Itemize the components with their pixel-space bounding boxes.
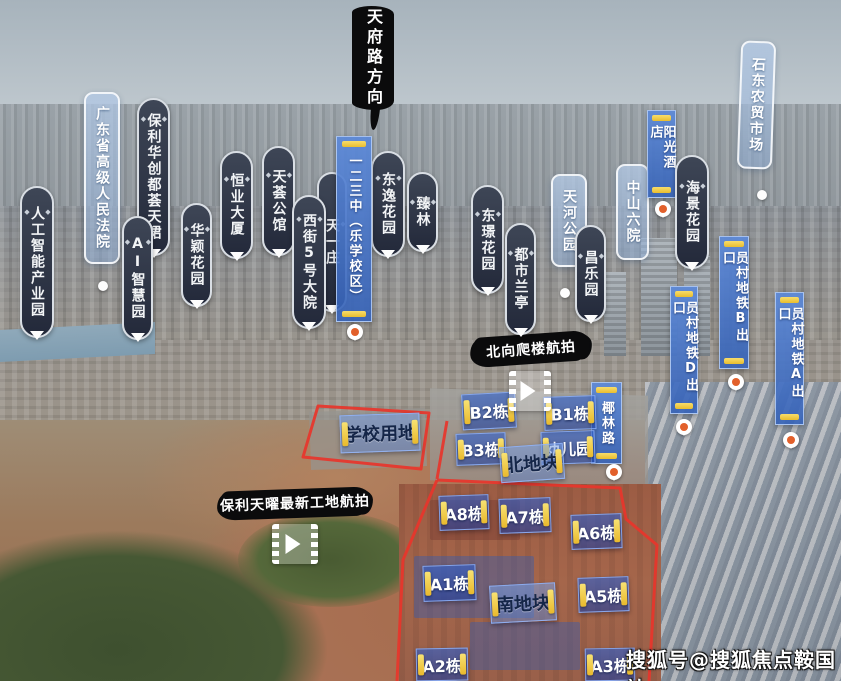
label-text: AI智慧园 bbox=[124, 236, 152, 320]
label-text: 广东省高级人民法院 bbox=[95, 106, 109, 250]
map-pin-icon bbox=[606, 464, 622, 480]
landmark-banner: 恒业大厦 bbox=[220, 151, 253, 259]
pointer-arrow-icon bbox=[131, 333, 145, 349]
label-text: 都市兰亭 bbox=[507, 247, 535, 311]
video-title-banner: 北向爬楼航拍 bbox=[471, 330, 591, 367]
video-title-banner: 保利天曜最新工地航拍 bbox=[219, 486, 372, 519]
building-label: A8栋 bbox=[438, 494, 489, 531]
landmark-banner: 海景花园 bbox=[675, 155, 709, 269]
label-text: 阳光酒店 bbox=[649, 111, 675, 197]
location-dot-icon bbox=[560, 288, 570, 298]
play-triangle-icon bbox=[521, 381, 546, 401]
pointer-arrow-icon bbox=[416, 245, 430, 261]
label-text: A6栋 bbox=[576, 519, 616, 544]
landmark-banner: 一二三中（乐学校区） bbox=[336, 136, 372, 322]
pointer-arrow-icon bbox=[30, 331, 44, 347]
label-text: 椰林路 bbox=[600, 387, 613, 460]
label-text: 海景花园 bbox=[678, 180, 706, 244]
label-text: 北地块 bbox=[504, 448, 560, 478]
label-text: 中山六院 bbox=[626, 180, 640, 244]
label-text: B3栋 bbox=[461, 436, 501, 461]
label-text: 员村地铁B出口 bbox=[721, 237, 747, 368]
label-text: 石东农贸市场 bbox=[748, 57, 765, 153]
map-pin-icon bbox=[655, 201, 671, 217]
landmark-banner: 都市兰亭 bbox=[505, 223, 536, 335]
landmark-banner: 西街5号大院 bbox=[292, 195, 326, 329]
label-text: 天河公园 bbox=[562, 189, 576, 253]
landmark-banner: 东逸花园 bbox=[371, 151, 405, 257]
pointer-arrow-icon bbox=[302, 322, 316, 338]
label-text: 东逸花园 bbox=[374, 172, 402, 236]
map-pin-icon bbox=[347, 324, 363, 340]
building-label: A7栋 bbox=[498, 497, 551, 534]
landmark-banner: 阳光酒店 bbox=[647, 110, 676, 198]
landmark-banner: 石东农贸市场 bbox=[737, 40, 776, 169]
label-text: B2栋 bbox=[469, 398, 510, 424]
label-text: 臻林 bbox=[409, 196, 437, 228]
plot-label: 南地块 bbox=[489, 582, 557, 623]
label-text: 昌乐园 bbox=[577, 250, 605, 298]
label-text: A8栋 bbox=[444, 500, 484, 525]
label-text: A2栋 bbox=[422, 652, 462, 677]
play-video-button[interactable] bbox=[272, 524, 318, 564]
pointer-arrow-icon bbox=[381, 250, 395, 266]
map-annotations-layer: 天府路方向北向爬楼航拍保利天曜最新工地航拍人工智能产业园广东省高级人民法院保利华… bbox=[0, 0, 841, 681]
label-text: 天府路方向 bbox=[365, 8, 381, 108]
aerial-map: 天府路方向北向爬楼航拍保利天曜最新工地航拍人工智能产业园广东省高级人民法院保利华… bbox=[0, 0, 841, 681]
pointer-arrow-icon bbox=[584, 315, 598, 331]
map-pin-icon bbox=[676, 419, 692, 435]
pointer-arrow-icon bbox=[685, 262, 699, 278]
label-text: 一二三中（乐学校区） bbox=[348, 140, 361, 318]
label-text: 恒业大厦 bbox=[223, 173, 251, 237]
pointer-arrow-icon bbox=[272, 249, 286, 265]
landmark-banner: AI智慧园 bbox=[122, 216, 153, 340]
label-text: 西街5号大院 bbox=[295, 213, 323, 311]
label-text: 员村地铁A出口 bbox=[777, 293, 803, 424]
plot-label: 北地块 bbox=[499, 443, 565, 483]
building-label: B1栋 bbox=[543, 395, 596, 431]
label-text: 南地块 bbox=[495, 589, 550, 618]
label-text: 员村地铁D出口 bbox=[671, 287, 697, 413]
label-text: A1栋 bbox=[429, 570, 469, 595]
pointer-arrow-icon bbox=[481, 287, 495, 303]
label-text: A3栋 bbox=[590, 652, 630, 677]
location-dot-icon bbox=[98, 281, 108, 291]
label-text: 人工智能产业园 bbox=[23, 206, 51, 318]
landmark-banner: 人工智能产业园 bbox=[20, 186, 54, 338]
map-pin-icon bbox=[783, 432, 799, 448]
landmark-banner: 员村地铁A出口 bbox=[775, 292, 804, 425]
map-pin-icon bbox=[728, 374, 744, 390]
landmark-banner: 广东省高级人民法院 bbox=[84, 92, 120, 264]
label-text: A7栋 bbox=[505, 503, 545, 528]
building-label: A1栋 bbox=[422, 564, 476, 602]
watermark: 搜狐号@搜狐焦点鞍国站 bbox=[626, 644, 841, 681]
location-dot-icon bbox=[757, 190, 767, 200]
label-text: A5栋 bbox=[583, 582, 623, 607]
plot-label: 学校用地 bbox=[339, 413, 420, 454]
label-text: 华颖花园 bbox=[183, 223, 211, 287]
pointer-arrow-icon bbox=[190, 300, 204, 316]
pointer-arrow-icon bbox=[230, 252, 244, 268]
building-label: A6栋 bbox=[570, 513, 622, 550]
landmark-banner: 员村地铁B出口 bbox=[719, 236, 749, 369]
building-label: A5栋 bbox=[577, 576, 629, 613]
label-text: 北向爬楼航拍 bbox=[485, 335, 576, 361]
landmark-banner: 华颖花园 bbox=[181, 203, 212, 307]
landmark-banner: 东璟花园 bbox=[471, 185, 504, 294]
landmark-banner: 天荟公馆 bbox=[262, 146, 295, 256]
label-text: 学校用地 bbox=[344, 419, 417, 447]
label-text: B1栋 bbox=[550, 400, 590, 425]
label-text: 保利天曜最新工地航拍 bbox=[220, 490, 371, 515]
play-triangle-icon bbox=[286, 534, 311, 554]
pointer-arrow-icon bbox=[514, 328, 528, 344]
landmark-banner: 昌乐园 bbox=[575, 225, 606, 322]
landmark-banner: 员村地铁D出口 bbox=[670, 286, 698, 414]
label-text: 东璟花园 bbox=[474, 208, 502, 272]
direction-banner: 天府路方向 bbox=[352, 6, 394, 110]
label-text: 天荟公馆 bbox=[265, 169, 293, 233]
play-video-button[interactable] bbox=[509, 371, 551, 411]
landmark-banner: 臻林 bbox=[407, 172, 438, 252]
landmark-banner: 中山六院 bbox=[616, 164, 649, 260]
building-label: A2栋 bbox=[416, 648, 469, 681]
